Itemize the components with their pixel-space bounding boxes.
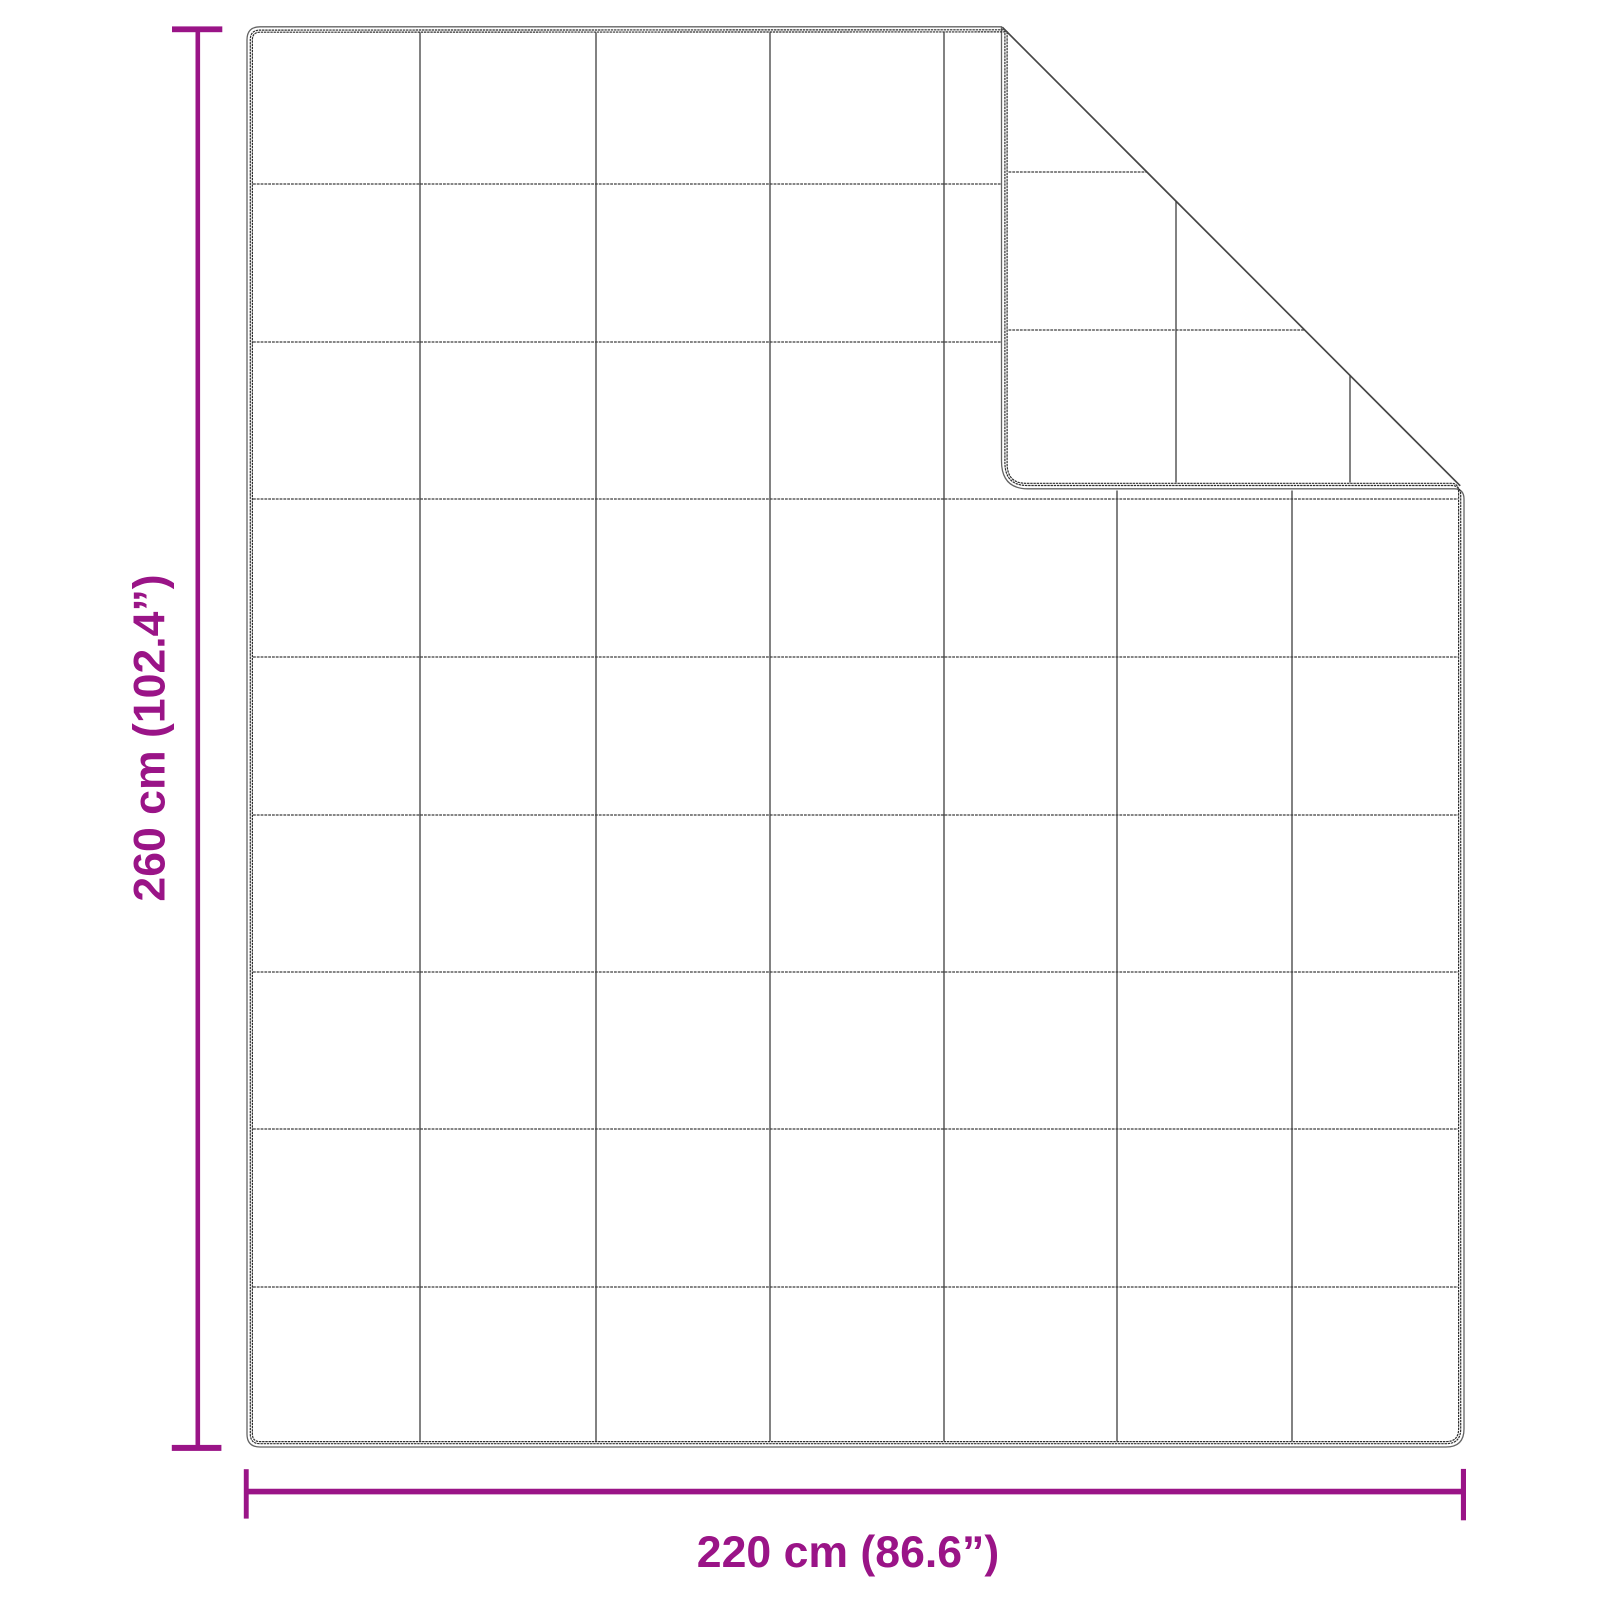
svg-text:260 cm (102.4”): 260 cm (102.4”) [126,574,175,901]
svg-text:220 cm (86.6”): 220 cm (86.6”) [697,1528,999,1577]
